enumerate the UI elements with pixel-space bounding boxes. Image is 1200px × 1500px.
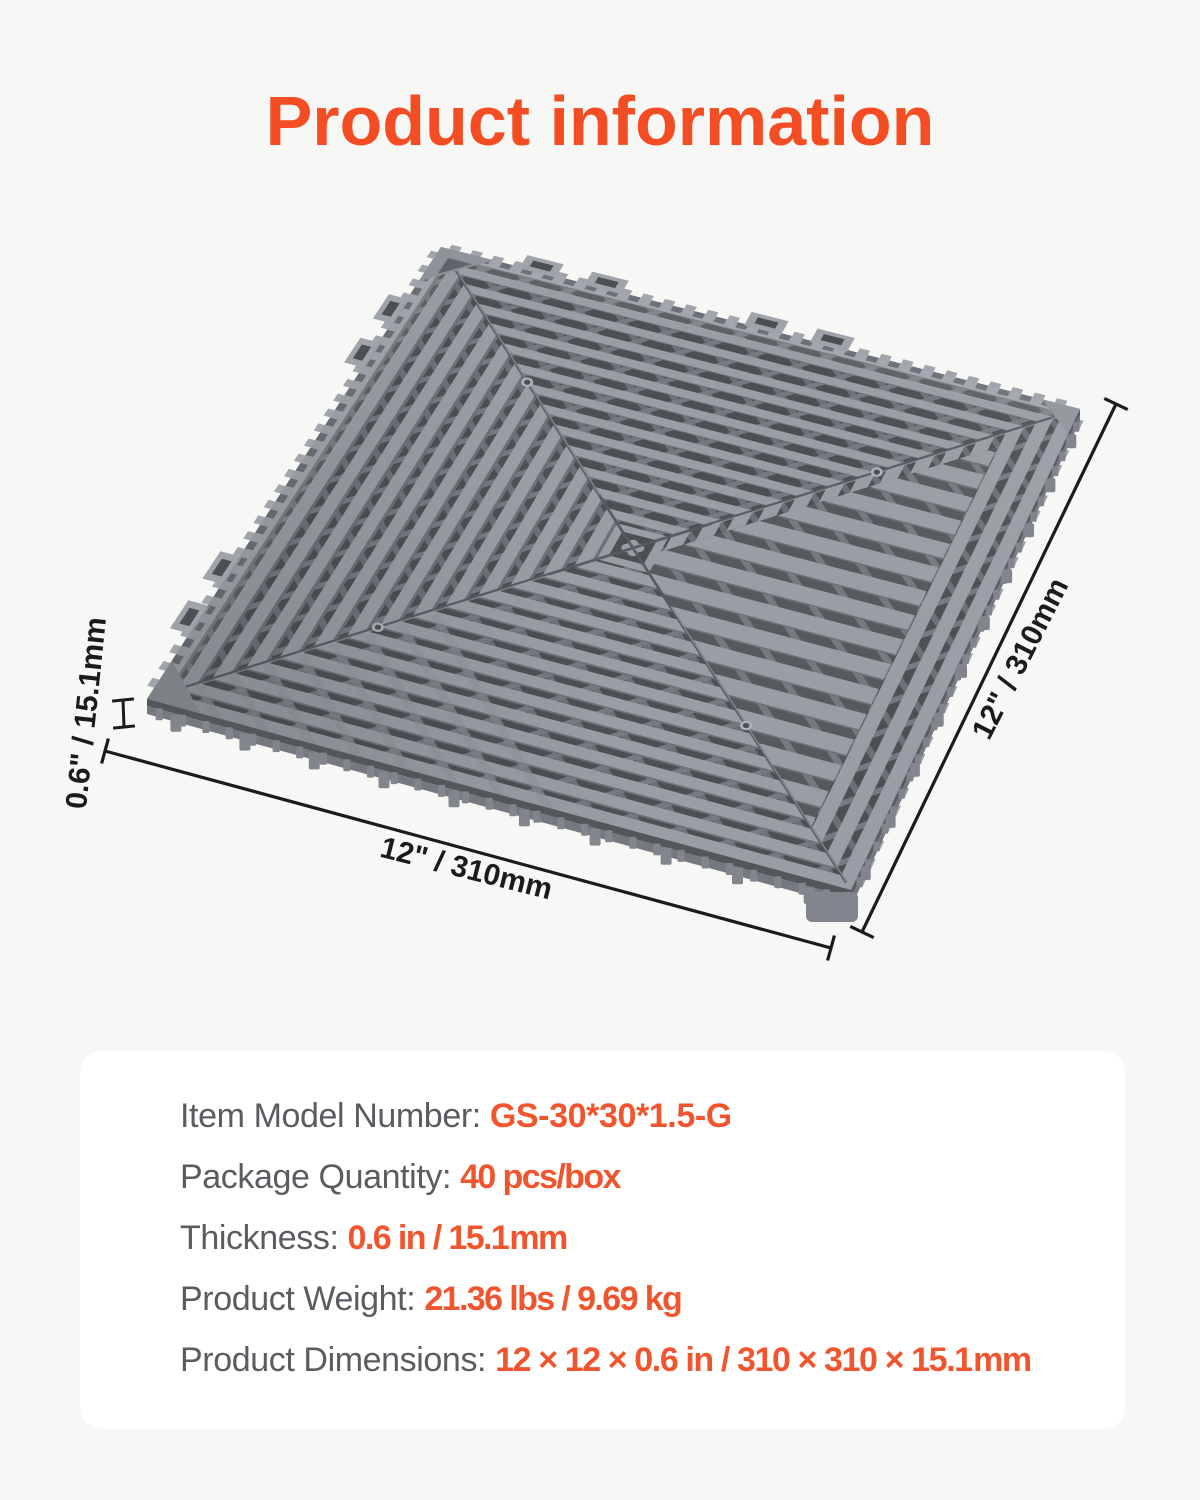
svg-text:0.6" / 15.1mm: 0.6" / 15.1mm xyxy=(60,615,113,810)
svg-text:12" / 310mm: 12" / 310mm xyxy=(377,831,556,906)
